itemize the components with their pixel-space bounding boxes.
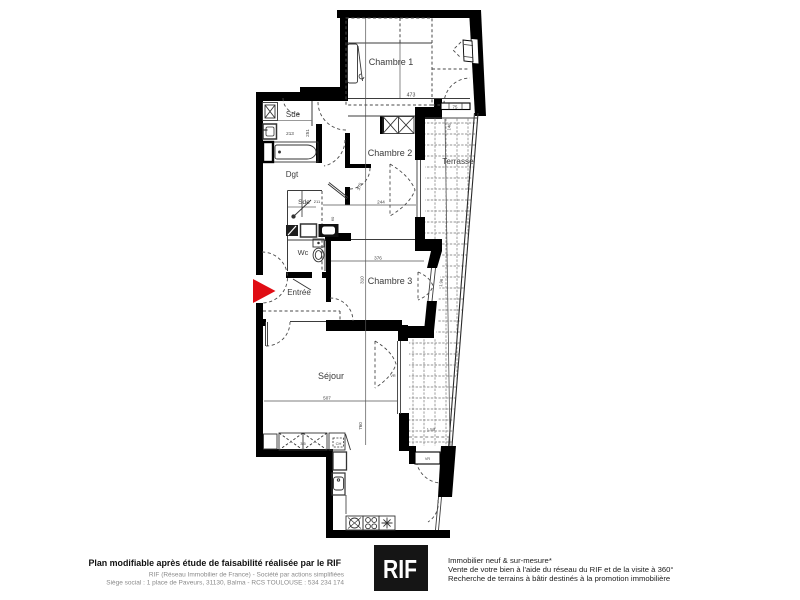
svg-text:507: 507 (323, 396, 331, 401)
svg-text:211: 211 (314, 199, 321, 204)
svg-text:Sde: Sde (298, 199, 310, 206)
svg-text:244: 244 (377, 200, 385, 205)
svg-text:Immobilier neuf & sur-mesure*: Immobilier neuf & sur-mesure* (448, 556, 552, 565)
svg-text:Chambre 1: Chambre 1 (369, 57, 414, 67)
svg-text:75: 75 (453, 105, 458, 110)
svg-text:Terrasse: Terrasse (442, 157, 474, 166)
svg-text:146: 146 (446, 123, 452, 131)
svg-text:Plan modifiable après étude de: Plan modifiable après étude de faisabili… (88, 558, 341, 568)
svg-text:Vente de votre bien à l'aide d: Vente de votre bien à l'aide du réseau d… (448, 565, 674, 574)
svg-text:RIF: RIF (383, 556, 417, 584)
svg-text:VR: VR (390, 374, 396, 378)
svg-text:310: 310 (360, 276, 365, 284)
svg-text:251: 251 (305, 129, 310, 137)
svg-text:Séjour: Séjour (318, 371, 344, 381)
svg-text:RIF (Réseau Immobilier de Fran: RIF (Réseau Immobilier de France) - Soci… (149, 572, 345, 579)
svg-text:Siège social : 1 place de Pave: Siège social : 1 place de Paveurs, 31130… (106, 580, 344, 587)
svg-text:213: 213 (286, 131, 294, 136)
svg-text:Entrée: Entrée (287, 288, 311, 297)
svg-text:VR: VR (425, 457, 431, 461)
svg-text:760: 760 (358, 422, 363, 430)
svg-text:1.96: 1.96 (438, 278, 444, 287)
svg-text:Chambre 2: Chambre 2 (368, 148, 413, 158)
svg-text:Wc: Wc (298, 248, 309, 257)
svg-text:60: 60 (330, 216, 335, 221)
svg-text:Dgt: Dgt (286, 170, 299, 179)
svg-text:Recherche de terrains à bâtir: Recherche de terrains à bâtir destinés à… (448, 574, 670, 583)
svg-text:375: 375 (356, 182, 363, 191)
svg-text:1.59: 1.59 (427, 427, 436, 433)
svg-text:Sde: Sde (286, 110, 301, 119)
svg-text:376: 376 (374, 256, 382, 261)
svg-text:3,5: 3,5 (300, 441, 306, 446)
svg-text:Chambre 3: Chambre 3 (368, 276, 413, 286)
svg-text:CH: CH (336, 441, 342, 446)
svg-text:473: 473 (407, 93, 416, 99)
